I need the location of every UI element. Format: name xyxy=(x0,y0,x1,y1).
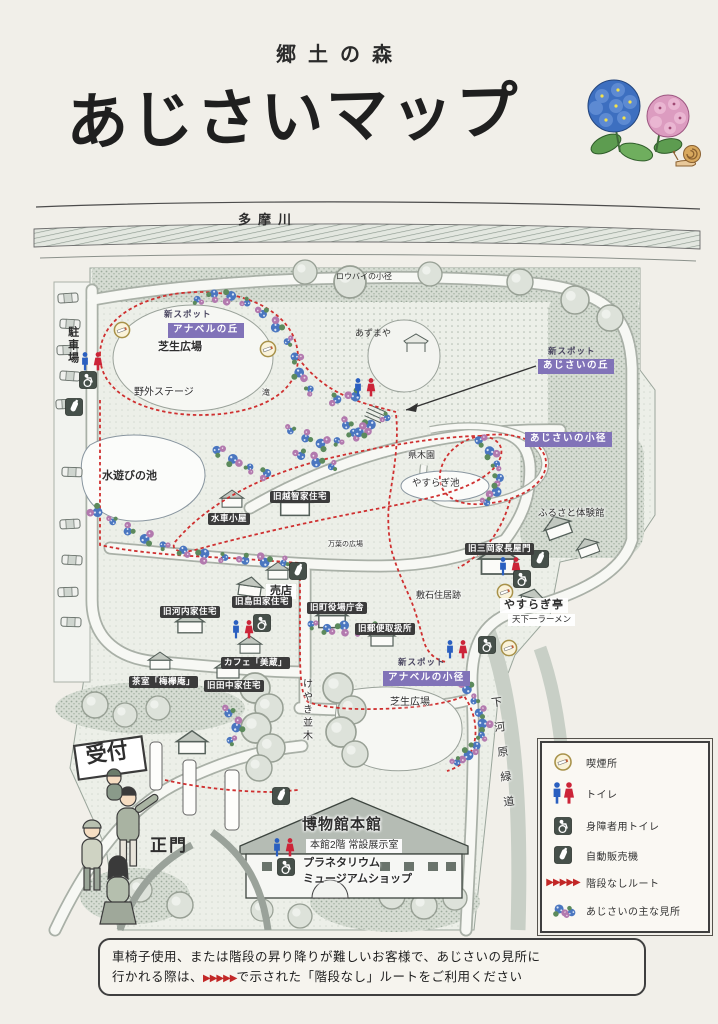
label-yasuragi-pond: やすらぎ池 xyxy=(412,479,460,490)
label-kenboku-en: 県木園 xyxy=(408,450,435,460)
label-kyu-kawachi-house: 旧河内家住宅 xyxy=(160,606,220,618)
label-shikiishi-ruins: 敷石住居跡 xyxy=(416,590,461,600)
blue-hydrangea xyxy=(588,80,640,132)
accessibility-note: 車椅子使用、または階段の昇り降りが難しいお客様で、あじさいの見所に 行かれる際は… xyxy=(98,938,646,996)
legend-row-vending: 自動販売機 xyxy=(549,845,701,865)
legend-label: 自動販売機 xyxy=(586,848,639,863)
label-ajisai-hill: あじさいの丘 xyxy=(538,359,614,374)
label-keyaki-namiki: けやき並木 xyxy=(300,678,312,743)
label-manyo-plaza: 万葉の広場 xyxy=(328,541,363,549)
label-robai-path: ロウバイの小径 xyxy=(336,272,392,281)
label-kyu-post-office: 旧郵便取扱所 xyxy=(355,623,415,635)
label-cafe-mikura: カフェ「美蔵」 xyxy=(221,657,290,669)
label-yasuragi-tei: やすらぎ亭 xyxy=(500,598,568,613)
legend-row-accessible-toilet: 身障者用トイレ xyxy=(549,816,701,836)
legend-label: 身障者用トイレ xyxy=(586,818,660,833)
label-kyu-ochi-house: 旧越智家住宅 xyxy=(270,491,330,503)
map-legend: 喫煙所 トイレ 身障者用トイレ 自動販売機 ▶▶▶▶▶ 階段なしルート あじさい… xyxy=(540,741,710,933)
label-water-play-pond: 水遊びの池 xyxy=(102,470,157,483)
route-arrows-glyph: ▶▶▶▶▶ xyxy=(203,973,236,984)
note-line2-pre: 行かれる際は、 xyxy=(112,970,203,984)
ajisai-map-page: { "header": { "subtitle": "郷土の森", "title… xyxy=(0,0,718,1024)
label-watermill-hut: 水車小屋 xyxy=(208,513,250,525)
label-new-spot-1: 新スポット xyxy=(164,310,212,320)
legend-label: 階段なしルート xyxy=(586,875,660,890)
legend-row-no-stairs-route: ▶▶▶▶▶ 階段なしルート xyxy=(549,875,701,890)
hydrangea-illustration xyxy=(572,60,708,176)
hydrangea-spot-icon xyxy=(549,900,577,922)
label-waterfall: 滝 xyxy=(262,388,270,397)
vending-machine-icon xyxy=(549,845,577,865)
label-parking: 駐車場 xyxy=(66,326,79,365)
label-lawn-plaza-north: 芝生広場 xyxy=(158,341,202,354)
label-lawn-plaza-south: 芝生広場 xyxy=(390,697,430,709)
label-kyu-mitsuoka-gate: 旧三岡家長屋門 xyxy=(465,543,534,555)
label-museum-2f-exhibit: 本館2階 常設展示室 xyxy=(306,839,402,853)
legend-label: トイレ xyxy=(586,786,618,801)
label-museum-main: 博物館本館 xyxy=(302,816,382,833)
label-new-spot-2: 新スポット xyxy=(548,347,596,357)
legend-row-hydrangea-spots: あじさいの主な見所 xyxy=(549,900,701,922)
label-museum-shop: ミュージアムショップ xyxy=(303,873,412,886)
legend-row-smoking: 喫煙所 xyxy=(549,752,701,772)
accessible-toilet-icon xyxy=(549,816,577,836)
label-tea-room-baikyoan: 茶室「梅欅庵」 xyxy=(129,676,198,688)
label-outdoor-stage: 野外ステージ xyxy=(134,387,194,399)
label-azumaya: あずまや xyxy=(355,328,391,338)
label-kyu-town-hall: 旧町役場庁舎 xyxy=(307,602,367,614)
label-annabelle-hill: アナベルの丘 xyxy=(168,323,244,338)
label-furusato-hall: ふるさと体験館 xyxy=(538,509,605,520)
legend-label: あじさいの主な見所 xyxy=(586,903,681,918)
toilet-icon xyxy=(549,782,577,806)
map-title: あじさいマップ xyxy=(65,60,522,162)
label-new-spot-3: 新スポット xyxy=(398,658,446,668)
label-kyu-shimada-house: 旧島田家住宅 xyxy=(232,596,292,608)
label-kyu-tanaka-house: 旧田中家住宅 xyxy=(204,680,264,692)
label-tenka-ichiban-ramen: 天下一ラーメン xyxy=(508,614,575,626)
label-tama-river: 多摩川 xyxy=(238,213,298,228)
note-line2-post: で示された「階段なし」ルートをご利用ください xyxy=(236,970,522,984)
note-line1: 車椅子使用、または階段の昇り降りが難しいお客様で、あじさいの見所に xyxy=(112,950,541,964)
pink-hydrangea xyxy=(647,95,689,137)
label-ajisai-path: あじさいの小径 xyxy=(525,432,612,447)
legend-row-toilet: トイレ xyxy=(549,782,701,806)
no-stairs-route-icon: ▶▶▶▶▶ xyxy=(549,877,577,888)
label-planetarium: プラネタリウム xyxy=(303,857,380,870)
legend-label: 喫煙所 xyxy=(586,755,618,770)
label-annabelle-path: アナベルの小径 xyxy=(383,671,470,686)
smoking-icon xyxy=(549,752,577,772)
tama-river xyxy=(34,202,700,261)
label-main-gate: 正門 xyxy=(150,836,188,856)
